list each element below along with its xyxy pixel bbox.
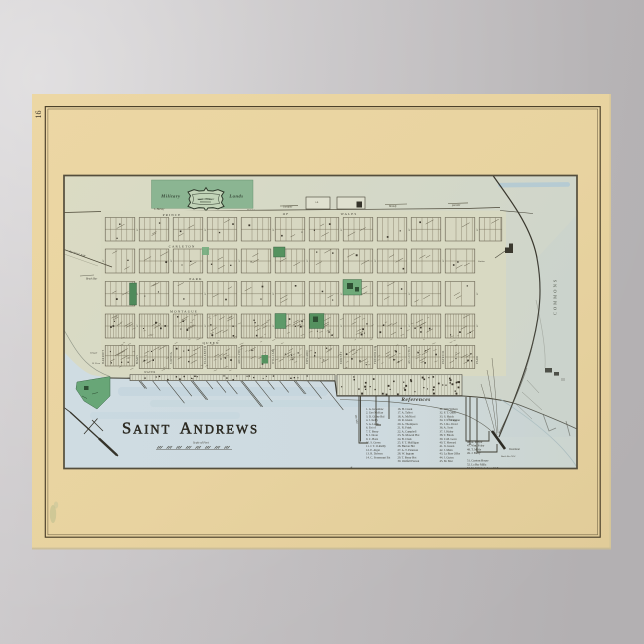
svg-text:parallel: parallel (451, 204, 460, 207)
svg-text:ERNEST: ERNEST (340, 351, 343, 364)
svg-text:WALES: WALES (341, 212, 358, 216)
svg-text:45. M. Mac: 45. M. Mac (440, 459, 454, 463)
svg-text:J.B.: J.B. (315, 201, 319, 204)
svg-text:30. Oddfell Parson: 30. Oddfell Parson (398, 459, 420, 463)
svg-text:EDWARD: EDWARD (306, 350, 309, 364)
svg-text:W. Cove: W. Cove (92, 362, 100, 365)
svg-text:AUGUSTUS: AUGUSTUS (408, 346, 411, 364)
svg-text:Turnpike: Turnpike (283, 206, 293, 209)
svg-text:PARR: PARR (476, 356, 479, 364)
svg-text:OF: OF (283, 212, 290, 216)
svg-text:PARK: PARK (189, 277, 202, 281)
svg-text:QUEEN: QUEEN (203, 341, 220, 345)
svg-text:14. C. Stormount Est: 14. C. Stormount Est (366, 455, 391, 459)
svg-text:CARLETON: CARLETON (169, 245, 196, 249)
svg-text:Berth Bos N.W.: Berth Bos N.W. (501, 455, 516, 458)
svg-text:49. J. Berry: 49. J. Berry (467, 451, 481, 455)
svg-text:MONTAGUE: MONTAGUE (170, 310, 198, 314)
svg-text:16: 16 (34, 111, 43, 119)
svg-text:References: References (400, 397, 430, 403)
svg-text:Lands: Lands (228, 194, 243, 199)
svg-text:Scale of Feet: Scale of Feet (193, 441, 209, 445)
svg-text:Brack Bar: Brack Bar (86, 278, 98, 281)
svg-text:SOPHIA: SOPHIA (170, 352, 173, 364)
svg-text:PATRICK: PATRICK (442, 350, 445, 364)
svg-text:Chapel: Chapel (90, 352, 98, 355)
svg-text:ADOLPHUS: ADOLPHUS (238, 346, 241, 364)
svg-text:Steamboat: Steamboat (509, 448, 520, 451)
svg-text:ELIZABETH: ELIZABETH (204, 346, 207, 364)
svg-text:Station: Station (478, 260, 486, 263)
svg-text:HARRIET: HARRIET (102, 350, 105, 364)
svg-text:Brandy: Brandy (389, 205, 397, 208)
svg-text:WILLIAM: WILLIAM (272, 349, 275, 364)
svg-text:WATER: WATER (144, 371, 156, 374)
svg-text:Military: Military (160, 194, 180, 199)
svg-text:FORT TIPPERARY: FORT TIPPERARY (198, 198, 215, 201)
svg-text:FREDERICK: FREDERICK (374, 345, 377, 364)
svg-text:PRINCE: PRINCE (163, 213, 182, 217)
svg-text:COMMONS: COMMONS (553, 278, 558, 315)
svg-text:MARY: MARY (136, 354, 139, 364)
